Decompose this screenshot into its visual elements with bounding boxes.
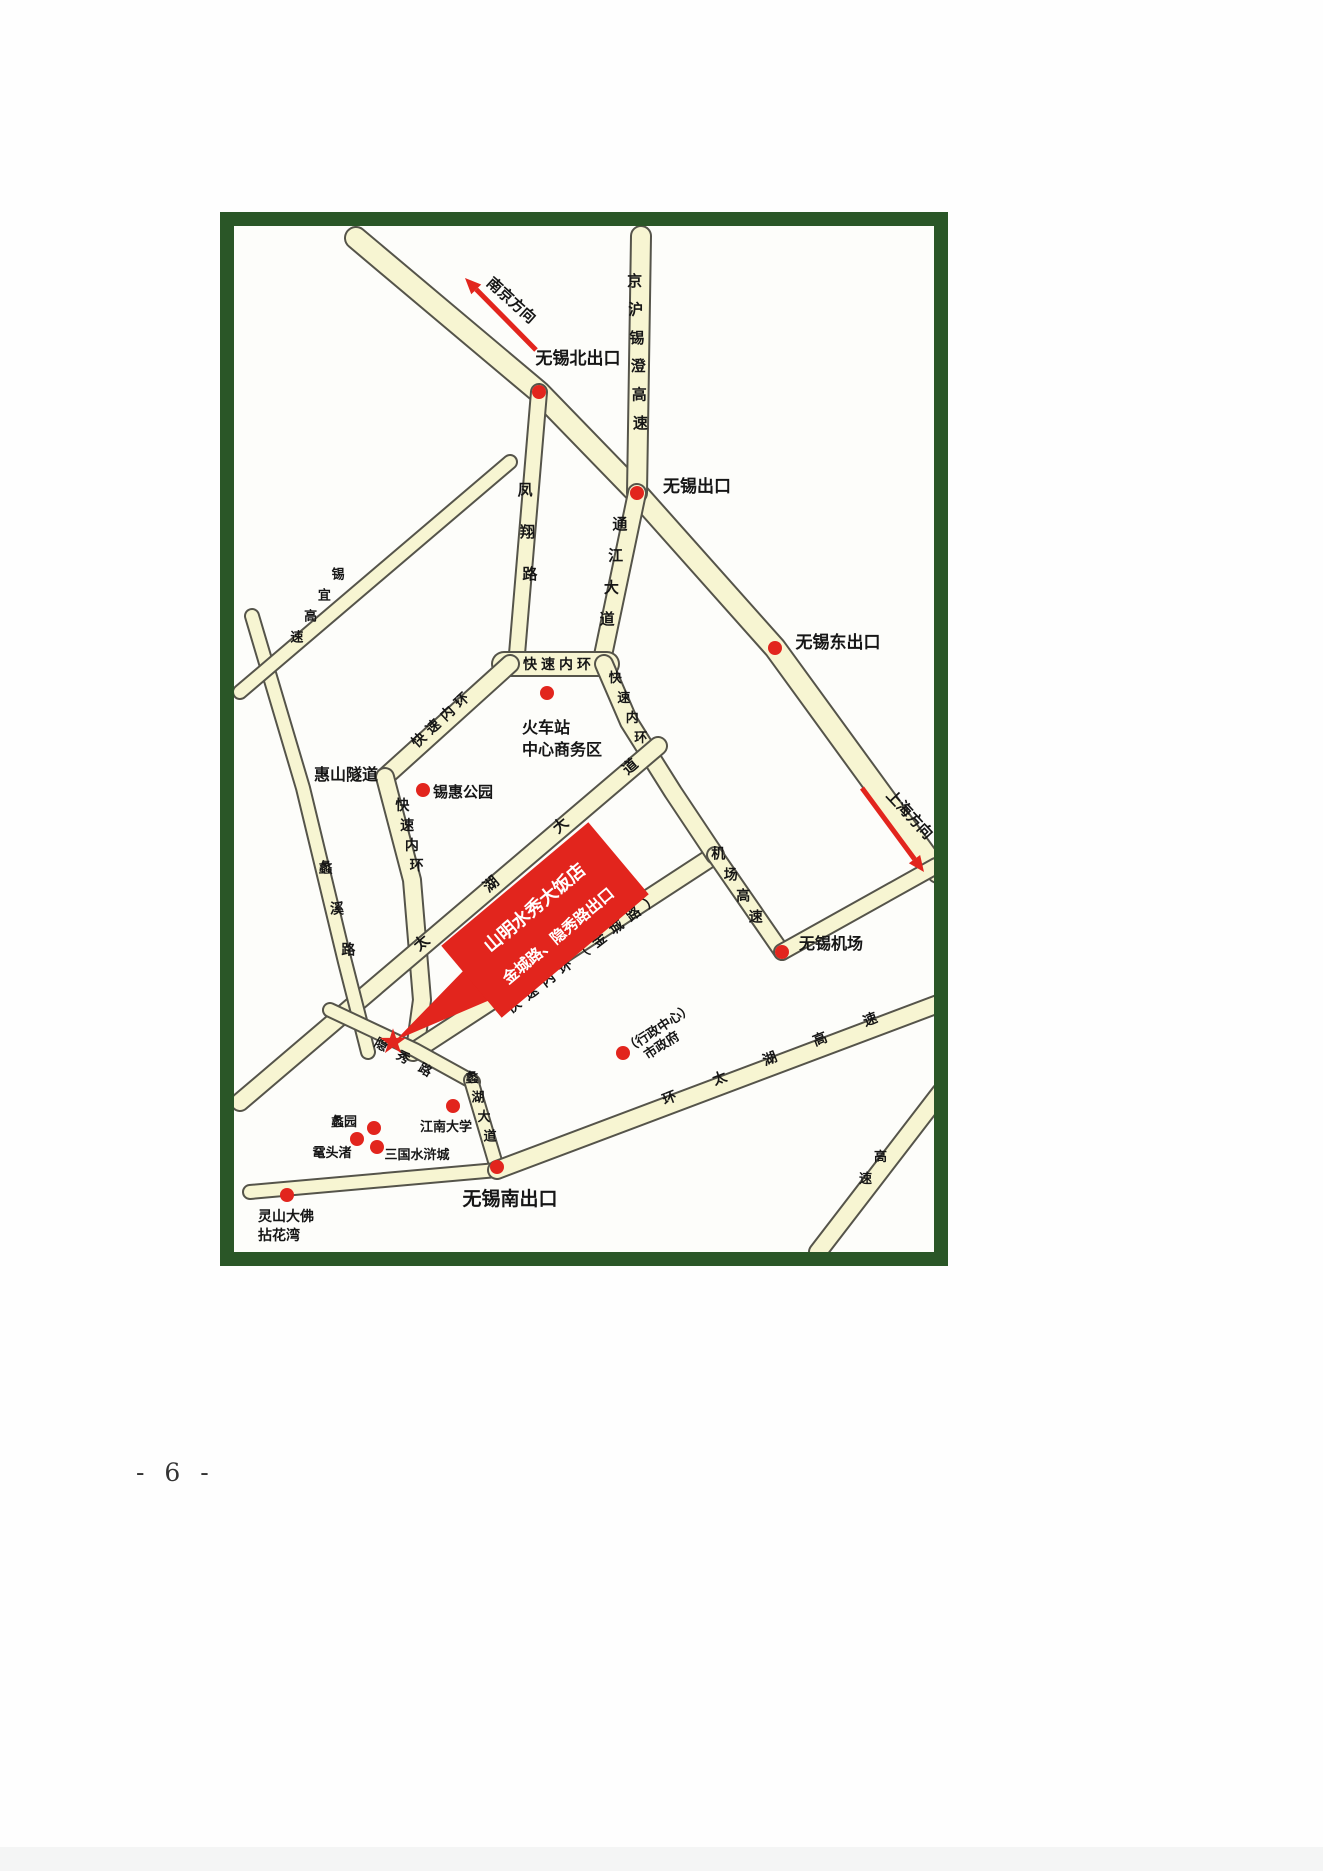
map-image: 京沪锡澄高速通江大道凤翔路快速内环快速内环快速内环快速内环（金城路）快速内环机场… [220,212,948,1266]
xihui-park-label: 锡惠公园 [433,783,493,801]
svg-text:大: 大 [477,1109,490,1125]
hotel-star: ★ [378,1022,408,1062]
three-kingdoms-city-label: 三国水浒城 [384,1147,449,1163]
svg-text:凤: 凤 [518,481,533,499]
three-kingdoms-city-dot [370,1140,384,1154]
lingshan-buddha-label-line1: 灵山大佛 [258,1208,314,1225]
wuxi-airport-dot [775,945,789,959]
wuxi-exit-dot [630,486,644,500]
railway-station-dot [540,686,554,700]
lingshan-buddha-dot [280,1188,294,1202]
svg-text:速: 速 [633,414,648,432]
svg-text:路: 路 [341,942,356,959]
svg-text:高: 高 [874,1149,887,1165]
wuxi-north-exit-dot [532,385,546,399]
svg-text:快: 快 [395,797,410,814]
railway-station-label-line1: 火车站 [522,718,570,737]
svg-text:沪: 沪 [628,301,643,319]
jiangnan-university-label: 江南大学 [420,1119,472,1135]
svg-text:通: 通 [612,515,627,533]
svg-text:路: 路 [522,565,538,583]
svg-text:内: 内 [405,837,419,854]
svg-text:道: 道 [600,610,615,628]
svg-text:环: 环 [634,731,647,746]
svg-text:环: 环 [410,858,424,874]
huishan-tunnel-label: 惠山隧道 [314,765,378,784]
liyuan-garden-label: 蠡园 [331,1114,357,1130]
wuxi-north-exit-label: 无锡北出口 [535,348,621,369]
wuxi-east-exit-label: 无锡东出口 [795,632,881,653]
jiangnan-university-dot [446,1099,460,1113]
svg-text:速: 速 [400,817,414,834]
wuxi-airport-label: 无锡机场 [798,934,863,953]
svg-text:高: 高 [736,888,750,905]
svg-text:蠡: 蠡 [319,860,333,877]
wuxi-east-exit-dot [768,641,782,655]
page-number: - 6 - [136,1458,215,1487]
svg-text:机: 机 [711,846,725,863]
hotel-location-map: 京沪锡澄高速通江大道凤翔路快速内环快速内环快速内环快速内环（金城路）快速内环机场… [220,212,948,1266]
liyuan-garden-dot [367,1121,381,1135]
svg-text:内: 内 [559,656,573,673]
yuantouzhu-label: 鼋头渚 [312,1145,351,1161]
svg-text:环: 环 [577,657,591,673]
svg-text:速: 速 [541,656,555,673]
svg-text:翔: 翔 [519,523,535,541]
svg-text:快: 快 [609,670,623,686]
svg-text:内: 内 [626,710,639,726]
svg-text:场: 场 [724,868,738,884]
document-page: 京沪锡澄高速通江大道凤翔路快速内环快速内环快速内环快速内环（金城路）快速内环机场… [0,0,1323,1871]
svg-text:江: 江 [608,547,623,565]
yuantouzhu-dot [350,1132,364,1146]
svg-text:道: 道 [483,1128,496,1144]
page-edge-strip [0,1847,1323,1871]
svg-text:高: 高 [304,609,317,625]
lingshan-buddha-label-line2: 拈花湾 [258,1227,300,1244]
svg-text:湖: 湖 [471,1090,484,1105]
svg-text:澄: 澄 [631,357,647,375]
svg-text:溪: 溪 [330,901,345,918]
wuxi-south-exit-dot [490,1160,504,1174]
svg-text:锡: 锡 [332,567,345,583]
svg-text:快: 快 [523,656,538,673]
svg-text:宜: 宜 [318,588,331,604]
railway-station-label-line2: 中心商务区 [522,740,602,759]
svg-text:速: 速 [749,909,763,926]
svg-text:高: 高 [632,386,647,404]
svg-text:蠡: 蠡 [465,1070,478,1086]
svg-text:大: 大 [604,578,619,596]
wuxi-south-exit-label: 无锡南出口 [462,1187,557,1210]
xihui-park-dot [416,783,430,797]
wuxi-exit-label: 无锡出口 [662,476,731,497]
svg-text:速: 速 [290,630,303,646]
svg-text:速: 速 [617,690,630,706]
svg-text:锡: 锡 [629,329,644,347]
svg-text:速: 速 [859,1171,872,1187]
svg-text:京: 京 [627,272,642,290]
